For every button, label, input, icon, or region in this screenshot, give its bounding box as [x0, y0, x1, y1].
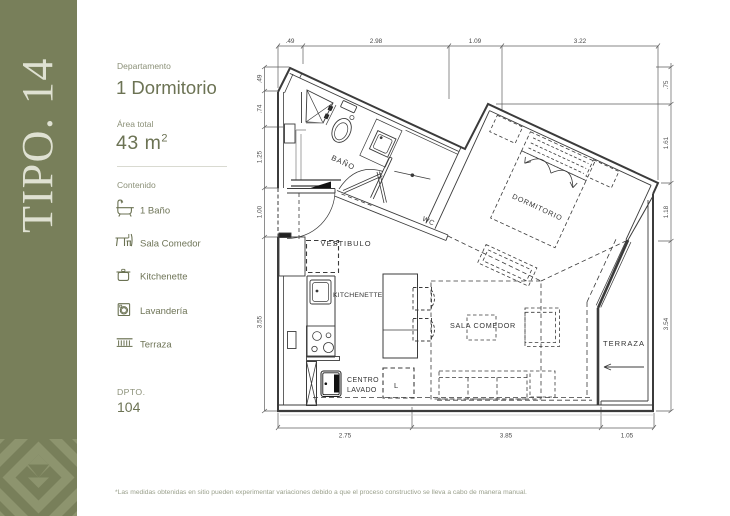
svg-text:3.22: 3.22 [574, 38, 587, 45]
svg-text:3.54: 3.54 [663, 317, 670, 330]
svg-text:TERRAZA: TERRAZA [603, 339, 645, 348]
svg-text:2.75: 2.75 [339, 433, 352, 440]
svg-text:.75: .75 [663, 80, 670, 89]
svg-text:L: L [394, 381, 398, 390]
svg-text:1.18: 1.18 [663, 205, 670, 218]
svg-text:1.00: 1.00 [257, 205, 264, 218]
svg-text:CENTRO: CENTRO [347, 377, 379, 384]
svg-text:1.25: 1.25 [257, 150, 264, 163]
svg-text:VESTIBULO: VESTIBULO [320, 239, 371, 248]
svg-text:1.61: 1.61 [663, 136, 670, 149]
svg-text:.49: .49 [286, 38, 295, 45]
svg-text:1.05: 1.05 [621, 433, 634, 440]
svg-text:LAVADO: LAVADO [347, 387, 377, 394]
svg-text:SALA COMEDOR: SALA COMEDOR [450, 321, 516, 330]
svg-text:2.98: 2.98 [370, 38, 383, 45]
svg-text:1.09: 1.09 [469, 38, 482, 45]
svg-text:KITCHENETTE: KITCHENETTE [333, 292, 383, 299]
svg-text:DORMITORIO: DORMITORIO [511, 192, 564, 223]
svg-text:3.85: 3.85 [500, 433, 513, 440]
svg-text:.49: .49 [257, 74, 264, 83]
svg-text:WC: WC [421, 216, 435, 228]
svg-text:.74: .74 [257, 104, 264, 113]
svg-text:3.55: 3.55 [257, 315, 264, 328]
svg-text:BAÑO: BAÑO [330, 153, 357, 172]
svg-text:R: R [334, 241, 338, 247]
